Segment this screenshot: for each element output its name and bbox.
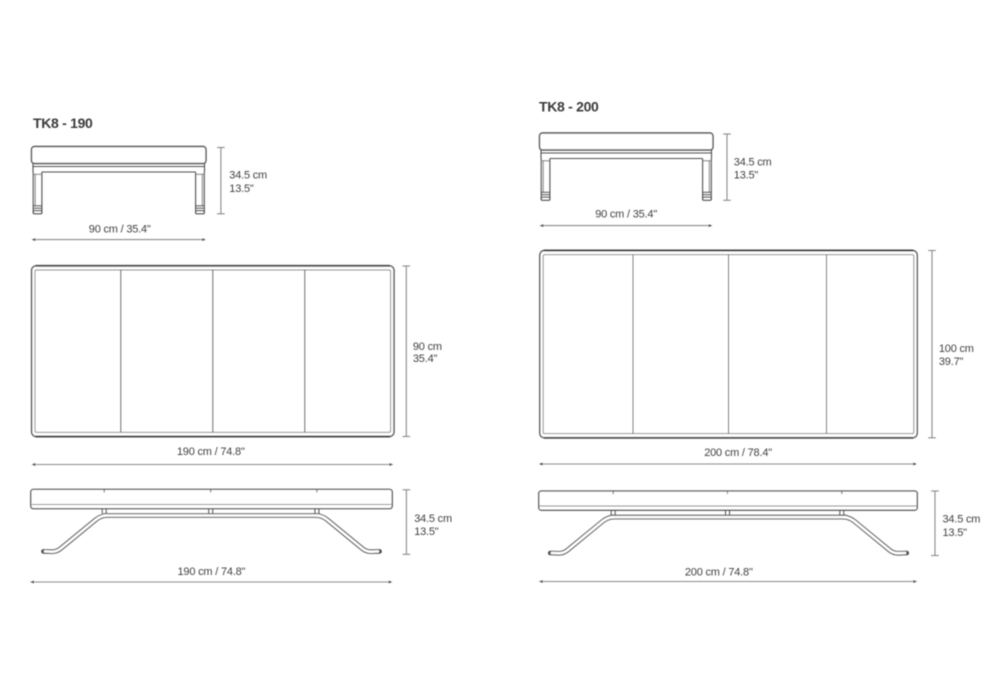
svg-text:200 cm / 78.4": 200 cm / 78.4" (704, 447, 772, 459)
svg-text:13.5": 13.5" (943, 527, 968, 539)
svg-text:34.5 cm: 34.5 cm (734, 157, 772, 169)
svg-text:90 cm / 35.4": 90 cm / 35.4" (595, 208, 657, 220)
svg-text:TK8 - 200: TK8 - 200 (539, 99, 599, 115)
svg-text:100 cm: 100 cm (939, 343, 974, 355)
svg-text:90 cm: 90 cm (413, 341, 442, 353)
svg-text:34.5 cm: 34.5 cm (943, 514, 981, 526)
svg-text:90 cm / 35.4": 90 cm / 35.4" (89, 223, 151, 235)
svg-text:190 cm / 74.8": 190 cm / 74.8" (177, 446, 245, 458)
svg-text:35.4": 35.4" (413, 353, 438, 365)
svg-text:13.5": 13.5" (414, 526, 439, 538)
svg-text:34.5 cm: 34.5 cm (414, 513, 452, 525)
svg-text:39.7": 39.7" (939, 356, 964, 368)
svg-text:190 cm / 74.8": 190 cm / 74.8" (178, 566, 246, 578)
svg-text:200 cm / 74.8": 200 cm / 74.8" (685, 567, 753, 579)
svg-text:TK8 - 190: TK8 - 190 (33, 115, 93, 131)
svg-text:13.5": 13.5" (734, 170, 759, 182)
svg-text:34.5 cm: 34.5 cm (229, 170, 267, 182)
svg-text:13.5": 13.5" (229, 183, 254, 195)
